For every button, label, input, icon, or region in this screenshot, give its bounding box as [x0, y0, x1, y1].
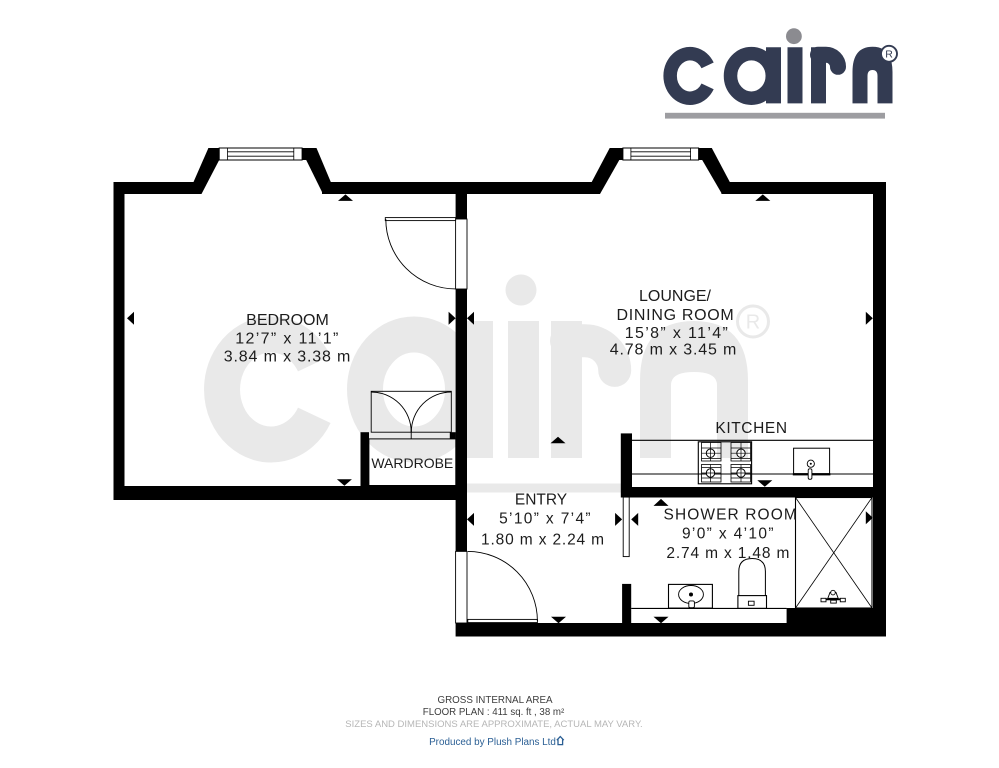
svg-text:KITCHEN: KITCHEN — [715, 420, 787, 437]
svg-text:9’0” x 4’10”: 9’0” x 4’10” — [682, 526, 775, 543]
svg-text:R: R — [746, 312, 760, 334]
svg-text:BEDROOM: BEDROOM — [246, 312, 329, 329]
svg-text:R: R — [885, 49, 893, 61]
svg-text:4.78 m x 3.45 m: 4.78 m x 3.45 m — [610, 342, 737, 359]
svg-text:1.80 m x 2.24 m: 1.80 m x 2.24 m — [481, 532, 605, 549]
svg-text:WARDROBE: WARDROBE — [371, 455, 453, 471]
svg-text:DINING ROOM: DINING ROOM — [617, 307, 735, 324]
svg-text:3.84 m x 3.38 m: 3.84 m x 3.38 m — [224, 349, 351, 366]
svg-text:FLOOR PLAN : 411 sq. ft , 38 m: FLOOR PLAN : 411 sq. ft , 38 m² — [423, 707, 565, 718]
svg-text:2.74 m x 1.48 m: 2.74 m x 1.48 m — [666, 545, 790, 562]
svg-text:SHOWER ROOM: SHOWER ROOM — [664, 507, 798, 524]
svg-text:ENTRY: ENTRY — [515, 491, 567, 508]
svg-text:SIZES AND DIMENSIONS ARE APPRO: SIZES AND DIMENSIONS ARE APPROXIMATE, AC… — [345, 719, 642, 730]
svg-text:GROSS INTERNAL AREA: GROSS INTERNAL AREA — [437, 695, 553, 706]
svg-text:LOUNGE/: LOUNGE/ — [639, 288, 712, 305]
svg-text:Produced by Plush Plans Ltd: Produced by Plush Plans Ltd — [429, 737, 556, 748]
svg-text:15’8” x 11’4”: 15’8” x 11’4” — [625, 325, 729, 342]
svg-text:5’10” x 7’4”: 5’10” x 7’4” — [499, 511, 592, 528]
svg-text:12’7” x 11’1”: 12’7” x 11’1” — [235, 330, 339, 347]
